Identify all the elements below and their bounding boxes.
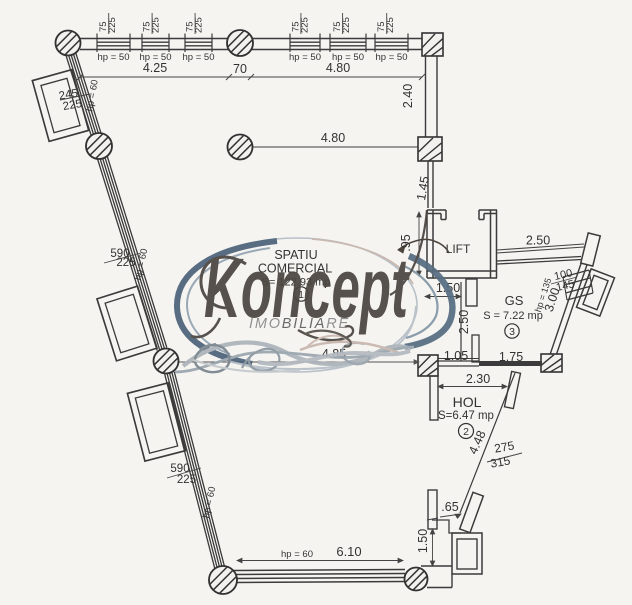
svg-text:4.80: 4.80	[321, 131, 345, 145]
svg-text:70: 70	[233, 62, 247, 76]
svg-text:1.75: 1.75	[499, 350, 523, 364]
svg-text:hp = 60: hp = 60	[281, 549, 313, 560]
svg-text:2.50: 2.50	[526, 234, 550, 248]
svg-text:2.50: 2.50	[457, 310, 471, 334]
svg-text:4.80: 4.80	[326, 61, 350, 75]
svg-text:2: 2	[463, 426, 469, 438]
svg-text:HOL: HOL	[453, 394, 482, 410]
svg-text:6.10: 6.10	[336, 544, 361, 559]
svg-text:GS: GS	[505, 293, 524, 308]
svg-text:hp = 50: hp = 50	[183, 52, 215, 63]
svg-text:S = 7.22 mp: S = 7.22 mp	[483, 310, 543, 322]
svg-text:IMOBILIARE: IMOBILIARE	[249, 316, 350, 332]
svg-text:2.30: 2.30	[466, 372, 490, 386]
svg-text:1.50: 1.50	[416, 529, 430, 553]
svg-text:LIFT: LIFT	[446, 242, 471, 256]
svg-text:.65: .65	[441, 500, 458, 514]
svg-text:2.40: 2.40	[401, 84, 415, 108]
svg-text:3: 3	[509, 326, 515, 338]
svg-text:hp = 50: hp = 50	[289, 52, 321, 63]
svg-text:1.05: 1.05	[444, 349, 468, 363]
svg-text:hp = 50: hp = 50	[376, 52, 408, 63]
svg-text:S=6.47 mp: S=6.47 mp	[438, 410, 494, 422]
svg-text:4.25: 4.25	[143, 61, 167, 75]
svg-text:225: 225	[177, 474, 196, 486]
svg-text:hp = 50: hp = 50	[98, 52, 130, 63]
